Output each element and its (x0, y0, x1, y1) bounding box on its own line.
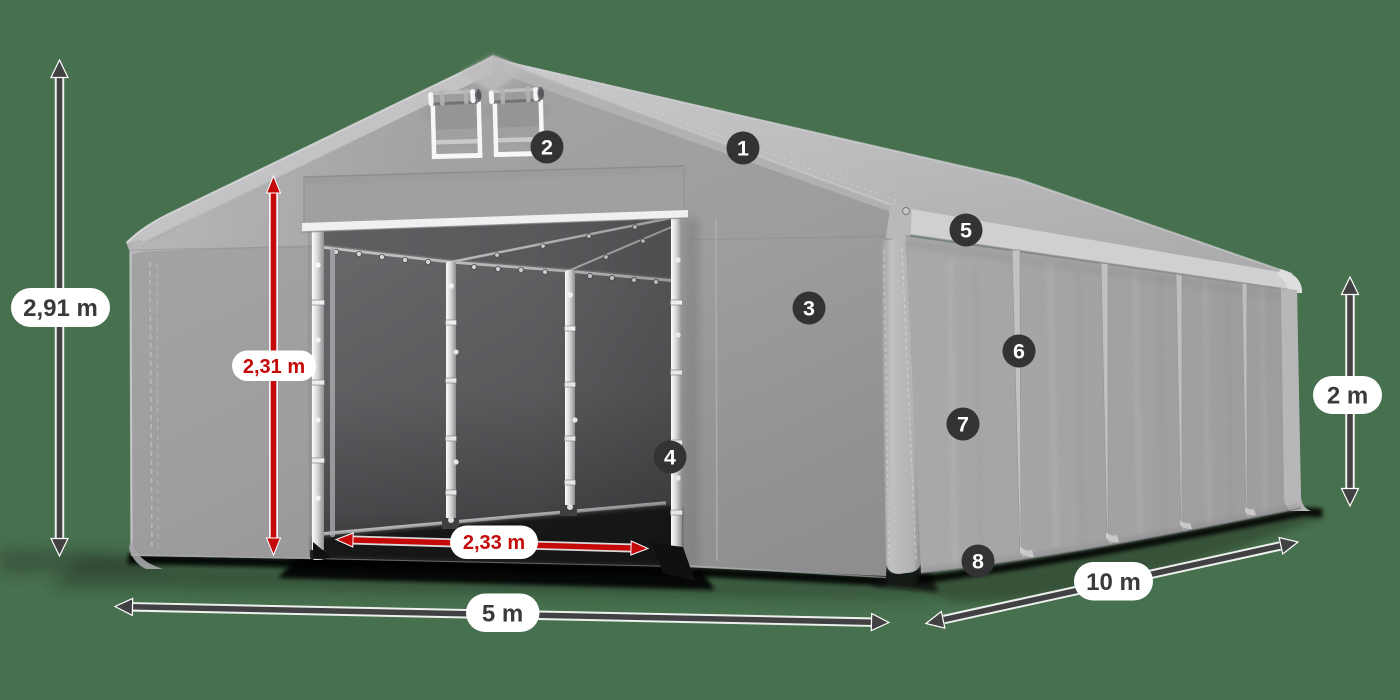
svg-text:2,31 m: 2,31 m (243, 356, 305, 378)
svg-text:8: 8 (972, 550, 984, 574)
svg-text:4: 4 (664, 446, 676, 470)
svg-text:1: 1 (737, 137, 749, 161)
svg-text:10 m: 10 m (1086, 569, 1141, 596)
svg-text:6: 6 (1013, 340, 1025, 364)
svg-text:2: 2 (541, 136, 553, 160)
svg-text:2 m: 2 m (1327, 383, 1368, 410)
svg-text:3: 3 (803, 297, 815, 321)
svg-text:2,91 m: 2,91 m (23, 295, 98, 322)
svg-text:2,33 m: 2,33 m (463, 532, 525, 554)
svg-text:5 m: 5 m (482, 601, 523, 628)
svg-text:5: 5 (960, 219, 972, 243)
svg-text:7: 7 (957, 413, 969, 437)
